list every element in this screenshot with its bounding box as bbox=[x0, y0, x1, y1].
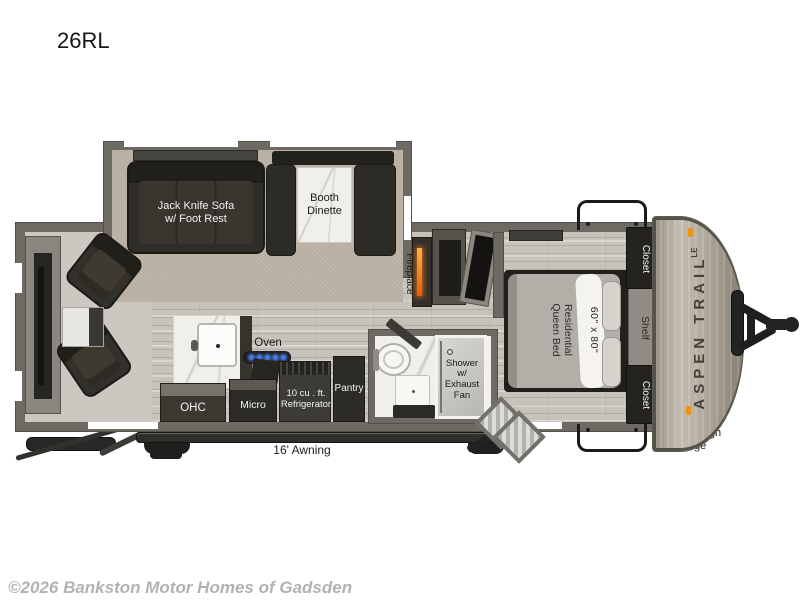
brand-wordmark: ASPEN TRAIL LE bbox=[689, 227, 709, 427]
bedroom-window bbox=[509, 230, 563, 241]
pantry: Pantry bbox=[333, 356, 365, 422]
hitch-coupler-knob bbox=[784, 317, 799, 332]
bed-size-text: 60" x 80" bbox=[588, 307, 600, 353]
bath-vanity-sink bbox=[395, 375, 430, 406]
sink-drain bbox=[216, 344, 220, 348]
dinette-label: Booth Dinette bbox=[307, 192, 342, 218]
toilet-bowl-ring bbox=[383, 350, 404, 369]
sink-faucet-icon bbox=[191, 340, 198, 351]
rear-wall-window bbox=[15, 371, 22, 401]
storage-bracket-bottom bbox=[577, 424, 647, 452]
closet-bottom-label: Closet bbox=[638, 370, 652, 420]
bath-mat bbox=[393, 405, 435, 418]
refrigerator: 10 cu . ft. Refrigerator bbox=[279, 361, 331, 422]
brand-text: ASPEN TRAIL bbox=[691, 255, 708, 410]
sofa-label: Jack Knife Sofa w/ Foot Rest bbox=[137, 189, 255, 236]
entertainment-cabinet-inset bbox=[439, 240, 461, 296]
bottom-wall-window bbox=[88, 422, 158, 429]
microwave: Micro bbox=[229, 379, 277, 422]
overhead-cabinet-top bbox=[161, 384, 225, 396]
burner-light bbox=[273, 355, 278, 360]
burner-light bbox=[281, 355, 286, 360]
fireplace-flame-glow bbox=[417, 248, 422, 296]
oven-label: Oven bbox=[248, 337, 288, 351]
bedroom-tv-screen bbox=[465, 235, 496, 302]
closet-top-text: Closet bbox=[639, 245, 651, 273]
shower-label: Shower w/ Exhaust Fan bbox=[440, 346, 484, 414]
bracket-rivet bbox=[634, 222, 638, 226]
shower-stall: Shower w/ Exhaust Fan bbox=[435, 335, 487, 419]
slideout-window bbox=[270, 141, 396, 147]
bed-label-text: Residential Queen Bed bbox=[550, 303, 575, 356]
dinette-bench-left bbox=[266, 164, 296, 256]
hitch-crossbar bbox=[747, 314, 755, 340]
awning-label: 16' Awning bbox=[242, 443, 362, 457]
tv-screen-line bbox=[38, 267, 44, 385]
slideout-side-window bbox=[404, 196, 411, 240]
awning-bar bbox=[136, 432, 522, 443]
bed-label: Residential Queen Bed bbox=[548, 288, 576, 372]
end-table bbox=[62, 307, 104, 347]
brand-badge: LE bbox=[690, 247, 699, 257]
vanity-drain bbox=[412, 390, 415, 393]
awning-leg-foot bbox=[150, 450, 182, 459]
bed-pillow bbox=[602, 337, 621, 387]
dinette-back bbox=[272, 151, 394, 165]
floorplan-page: 26RL 16' Awning Jack Knife Sofa w/ Foot … bbox=[0, 0, 800, 600]
floorplan-model-title: 26RL bbox=[57, 28, 110, 54]
toilet bbox=[376, 343, 411, 376]
bed-foot-shadow bbox=[508, 274, 517, 388]
ohc-label: OHC bbox=[161, 396, 225, 422]
refrigerator-label: 10 cu . ft. Refrigerator bbox=[278, 378, 334, 420]
dinette-table: Booth Dinette bbox=[297, 167, 352, 243]
bracket-rivet bbox=[634, 428, 638, 432]
toilet-tank bbox=[373, 349, 379, 371]
bracket-rivet bbox=[586, 222, 590, 226]
jack-knife-sofa: Jack Knife Sofa w/ Foot Rest bbox=[127, 161, 265, 254]
bed-pillow bbox=[602, 281, 621, 331]
bed-size-label: 60" x 80" bbox=[587, 293, 601, 367]
shelf-text: Shelf bbox=[639, 316, 651, 340]
refrigerator-top-vent bbox=[280, 362, 330, 375]
rear-media-console bbox=[25, 236, 61, 414]
micro-label: Micro bbox=[230, 390, 276, 421]
closet-top-label: Closet bbox=[638, 234, 652, 284]
bracket-rivet bbox=[586, 428, 590, 432]
sofa-back bbox=[129, 163, 263, 183]
dinette-bench-right bbox=[354, 164, 396, 256]
microwave-top bbox=[230, 380, 276, 390]
shelf-label: Shelf bbox=[638, 303, 652, 353]
sofa-window-shade bbox=[133, 150, 258, 161]
end-table-shadow-side bbox=[89, 308, 103, 346]
overhead-cabinet: OHC bbox=[160, 383, 226, 422]
storage-bracket-top bbox=[577, 200, 647, 230]
fireplace-unit bbox=[412, 237, 432, 307]
copyright-watermark: ©2026 Bankston Motor Homes of Gadsden bbox=[8, 578, 352, 598]
kitchen-sink bbox=[197, 323, 237, 367]
rear-wall-window bbox=[15, 263, 22, 293]
pantry-label: Pantry bbox=[335, 383, 364, 395]
slideout-window bbox=[124, 141, 238, 147]
closet-bottom-text: Closet bbox=[639, 381, 651, 409]
bedroom-partition-wall bbox=[493, 232, 504, 318]
